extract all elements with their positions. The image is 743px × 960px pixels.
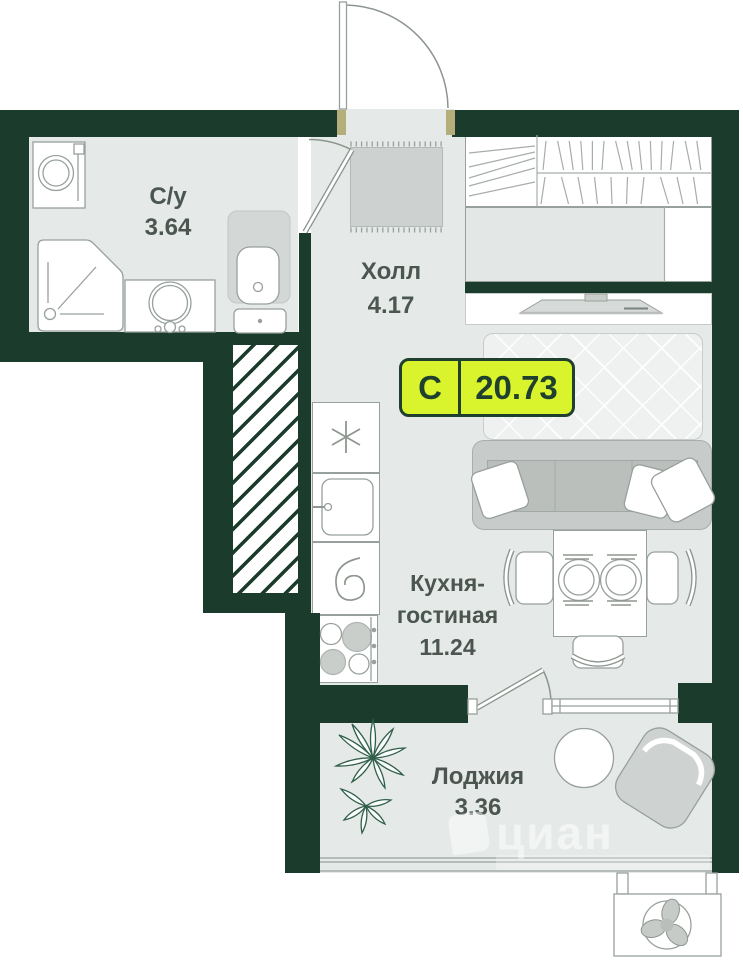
- room-area: 4.17: [331, 289, 451, 323]
- watermark-blur-strip: [496, 855, 710, 870]
- watermark-text: циан: [496, 806, 614, 860]
- rug: [350, 147, 443, 227]
- wall-loggia-left: [285, 613, 320, 873]
- wall-shaft-left: [203, 362, 233, 613]
- wall-top-left: [0, 110, 337, 137]
- wardrobe: [465, 135, 712, 207]
- wall-window-stub: [678, 683, 712, 723]
- area-badge: С 20.73: [399, 358, 575, 417]
- badge-total-area: 20.73: [461, 361, 572, 414]
- room-label-bathroom: С/у 3.64: [98, 181, 238, 243]
- room-area: 3.64: [98, 212, 238, 243]
- tv-console: [465, 293, 712, 325]
- fridge: [312, 402, 380, 473]
- wall-right: [712, 110, 739, 873]
- floor-balcony-opening: [468, 685, 712, 723]
- sofa-seat: [487, 460, 698, 512]
- kitchen-cabinet: [312, 542, 380, 615]
- stove: [314, 615, 378, 683]
- room-name: Кухня-гостиная: [397, 570, 498, 628]
- floor-entrance-threshold: [337, 109, 455, 137]
- ac-unit: [614, 873, 721, 956]
- ventilation-shaft: [233, 345, 298, 593]
- floorplan: С/у 3.64 Холл 4.17 Кухня-гостиная 11.24 …: [0, 0, 743, 960]
- watermark: циан: [450, 806, 614, 860]
- dining-table: [553, 530, 647, 637]
- wall-shaft-right: [298, 345, 311, 613]
- room-area: 11.24: [380, 631, 515, 663]
- kitchen-sink-cabinet: [312, 473, 380, 542]
- fan-icon: [639, 897, 692, 950]
- wall-top-right: [452, 110, 739, 137]
- room-label-hall: Холл 4.17: [331, 255, 451, 323]
- badge-apartment-type: С: [402, 361, 458, 414]
- dresser: [465, 207, 712, 282]
- wall-bathroom-hall: [299, 233, 311, 332]
- room-name: С/у: [149, 183, 186, 210]
- room-label-kitchen-living: Кухня-гостиная 11.24: [380, 567, 515, 663]
- dresser-top: [466, 208, 665, 281]
- wall-partition-tv: [465, 282, 712, 293]
- room-name: Лоджия: [432, 763, 524, 790]
- cian-logo-icon: [447, 811, 490, 856]
- wall-shaft-top: [207, 332, 311, 345]
- wall-living-bottom: [320, 685, 468, 723]
- room-name: Холл: [361, 258, 421, 285]
- wall-bathroom-bottom: [0, 332, 233, 362]
- wall-shaft-bottom: [203, 593, 311, 613]
- wall-left: [0, 110, 29, 362]
